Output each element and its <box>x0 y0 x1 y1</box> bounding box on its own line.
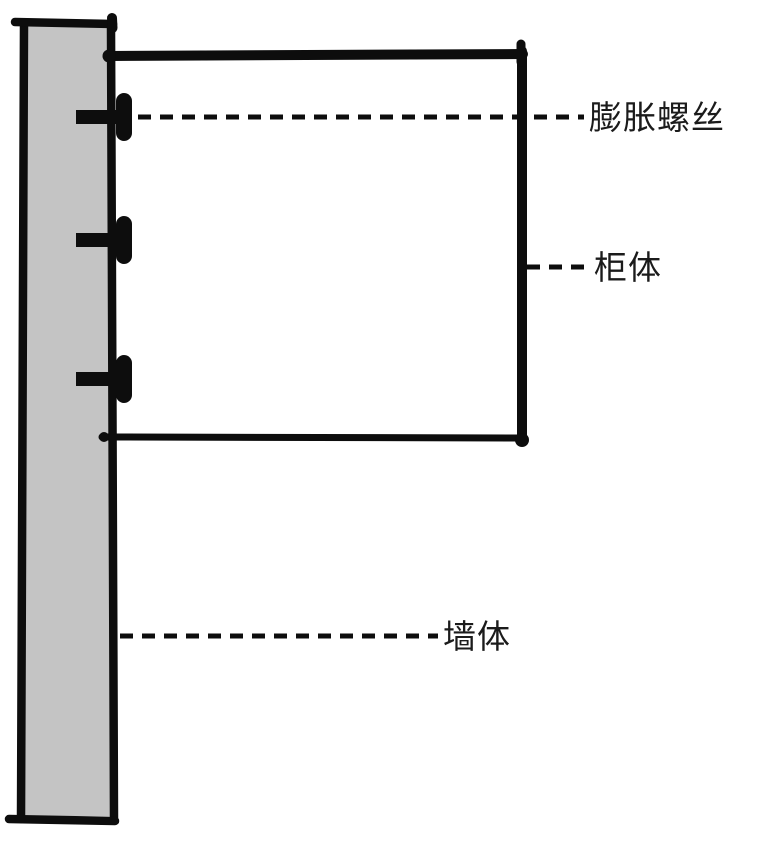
screw-head <box>116 216 132 264</box>
wall-right-edge <box>111 27 114 819</box>
wall-top-right-tick <box>112 18 113 28</box>
cabinet-label: 柜体 <box>594 249 662 286</box>
cabinet-top-edge <box>108 54 523 56</box>
screw-head <box>116 93 132 141</box>
screw-head <box>116 355 132 403</box>
wall-label: 墙体 <box>443 618 511 655</box>
wall-top-edge <box>15 22 113 24</box>
cabinet-top-left-dot <box>103 50 116 63</box>
cabinet-bottom-right-dot <box>515 433 529 447</box>
cabinet-bottom-edge <box>102 437 524 438</box>
diagram-canvas: 膨胀螺丝 柜体 墙体 <box>0 0 760 846</box>
cabinet-bottom-left-dot <box>99 432 109 442</box>
expansion-screw-label: 膨胀螺丝 <box>589 99 725 136</box>
wall-left-edge <box>21 24 24 819</box>
wall-bottom-edge <box>9 819 115 821</box>
wall-body <box>24 26 111 816</box>
installation-diagram: 膨胀螺丝 柜体 墙体 <box>0 0 760 846</box>
